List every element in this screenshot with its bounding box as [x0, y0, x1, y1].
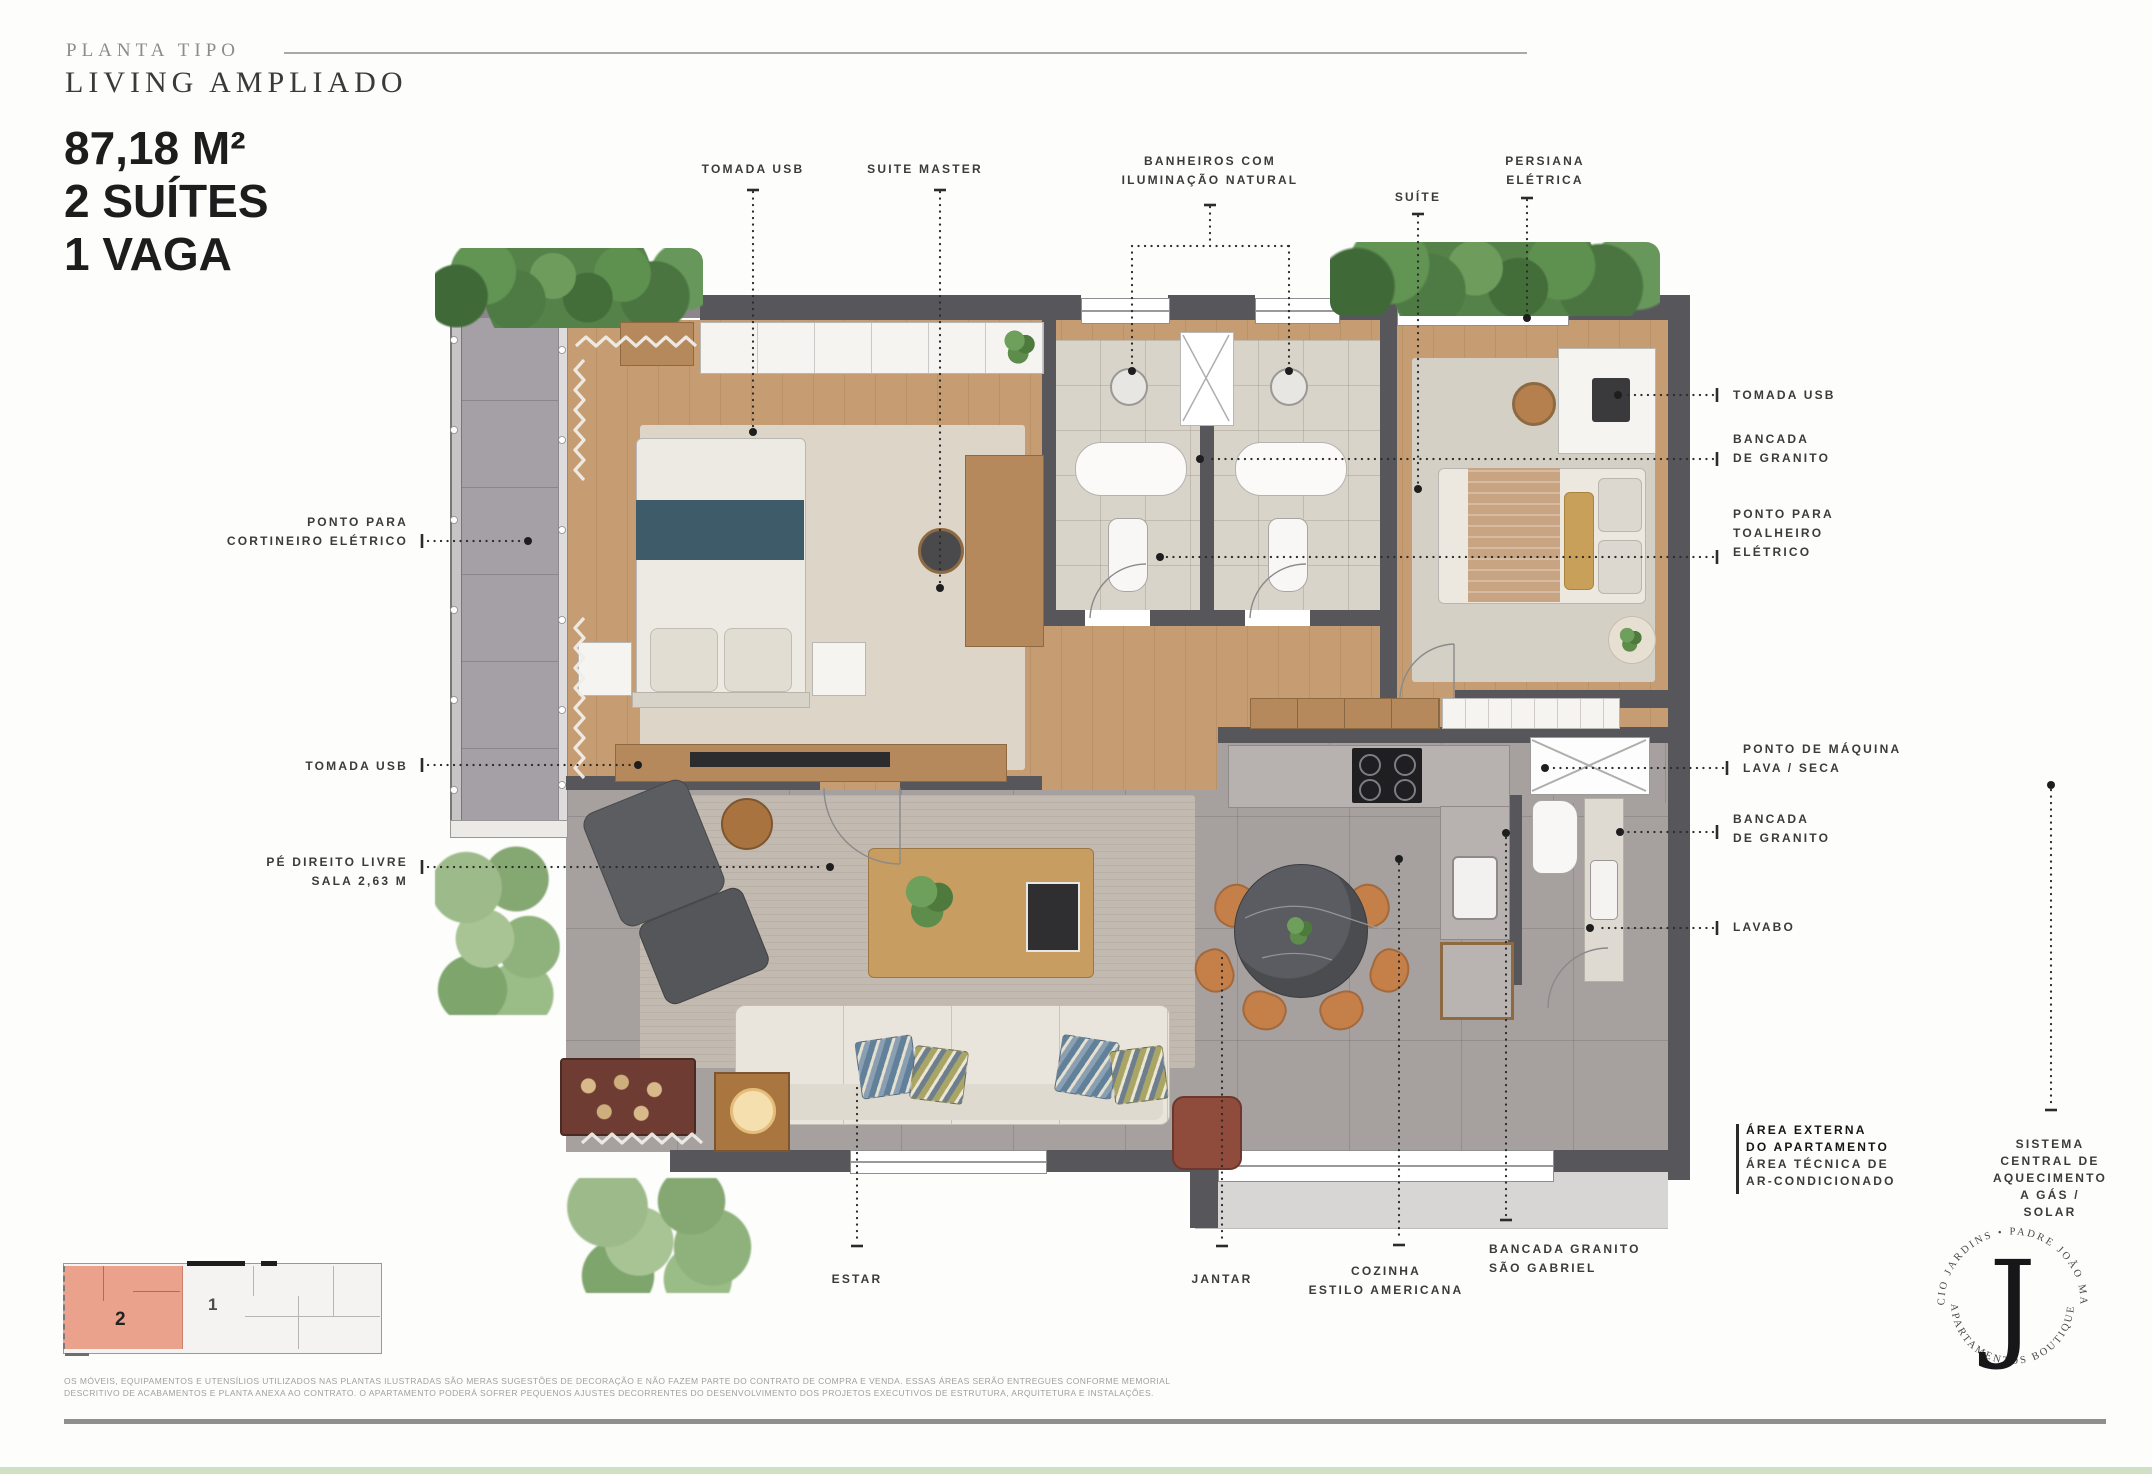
- logo-monogram: J: [1979, 1235, 2036, 1373]
- accent-chair-red: [1172, 1096, 1242, 1170]
- callout-pe-direito: PÉ DIREITO LIVRE SALA 2,63 M: [266, 853, 408, 891]
- living-window: [850, 1150, 1047, 1174]
- callout-bancada-granito-1: BANCADA DE GRANITO: [1733, 430, 1830, 468]
- dining-table-plant: [1285, 915, 1315, 945]
- callout-cortineiro: PONTO PARA CORTINEIRO ELÉTRICO: [227, 513, 408, 551]
- key-plan-unit-2: [63, 1266, 183, 1349]
- bath2-tub: [1235, 442, 1347, 496]
- callout-tomada-usb-right: TOMADA USB: [1733, 386, 1836, 405]
- suite-bed-blanket: [1468, 468, 1560, 602]
- callout-lava-seca: PONTO DE MÁQUINA LAVA / SECA: [1743, 740, 1901, 778]
- plan-type-eyebrow: PLANTA TIPO: [66, 40, 240, 62]
- wall-bath-suite: [1380, 320, 1397, 708]
- master-bed-runner: [636, 500, 804, 560]
- bath1-door-gap: [1085, 610, 1150, 626]
- header-rule: [284, 52, 1527, 54]
- bath1-sink: [1110, 368, 1148, 406]
- callout-estar: ESTAR: [832, 1270, 883, 1289]
- key-plan-wall-e: [245, 1316, 380, 1317]
- suite-accent-pillow: [1564, 492, 1594, 590]
- svg-text:EDIFÍCIO JARDINS • PADRE JOÃO: EDIFÍCIO JARDINS • PADRE JOÃO MANUEL: [1925, 1215, 2089, 1307]
- callout-toalheiro: PONTO PARA TOALHEIRO ELÉTRICO: [1733, 505, 1834, 562]
- footer-rule: [64, 1419, 2106, 1424]
- unit-stats: 87,18 M² 2 SUÍTES 1 VAGA: [64, 122, 269, 281]
- kitchen-cabinet: [1440, 942, 1514, 1020]
- suite-laptop: [1592, 378, 1630, 422]
- callout-tomada-usb-left: TOMADA USB: [305, 757, 408, 776]
- tv: [690, 752, 890, 767]
- callout-lavabo: LAVABO: [1733, 918, 1795, 937]
- wall-bedroom-bath: [1042, 320, 1056, 625]
- bath1-tub: [1075, 442, 1187, 496]
- key-plan-wall-f: [333, 1266, 334, 1316]
- key-plan-unit-1-label: 1: [208, 1295, 217, 1315]
- suite-pillow-1: [1598, 478, 1642, 532]
- key-plan-unit-2-label: 2: [115, 1309, 126, 1331]
- nightstand-left: [578, 642, 632, 696]
- externa-window: [1218, 1150, 1554, 1182]
- suite-chair: [1512, 382, 1556, 426]
- coffee-table-plant: [902, 872, 958, 928]
- page-title: LIVING AMPLIADO: [65, 66, 407, 100]
- callout-suite: SUÍTE: [1395, 188, 1441, 207]
- balcony-floor: [450, 300, 558, 835]
- hedge-top-right: [1330, 242, 1660, 316]
- disclaimer-line-2: DESCRITIVO DE ACABAMENTOS E PLANTA ANEXA…: [64, 1388, 1154, 1398]
- kitchen-sink: [1452, 856, 1498, 920]
- master-headboard: [632, 692, 810, 708]
- stat-area: 87,18 M²: [64, 122, 269, 175]
- bushes-bottom: [555, 1178, 765, 1293]
- bath1-toilet: [1108, 518, 1148, 592]
- master-dresser: [620, 322, 694, 366]
- wall-bottom-a: [670, 1150, 850, 1172]
- master-wardrobe: [700, 322, 1044, 374]
- nightstand-right: [812, 642, 866, 696]
- key-plan-wall-a: [103, 1266, 104, 1301]
- callout-cozinha: COZINHA ESTILO AMERICANA: [1309, 1262, 1464, 1300]
- bath2-sink: [1270, 368, 1308, 406]
- lamp-glow: [730, 1088, 776, 1134]
- area-externa-bar: [1736, 1124, 1739, 1194]
- hall-bench: [1442, 698, 1620, 729]
- callout-suite-master: SUITE MASTER: [867, 160, 983, 179]
- key-plan-mark-1: [187, 1261, 245, 1266]
- master-pillow-2: [724, 628, 792, 692]
- callout-bancada-granito-2: BANCADA DE GRANITO: [1733, 810, 1830, 848]
- callout-sistema-aquecimento: SISTEMA CENTRAL DE AQUECIMENTO A GÁS / S…: [1993, 1136, 2107, 1221]
- brand-logo: EDIFÍCIO JARDINS • PADRE JOÃO MANUEL • A…: [1925, 1215, 2100, 1390]
- key-plan: 2 1: [63, 1261, 383, 1356]
- wall-top-2: [1168, 295, 1255, 320]
- burner-2: [1394, 754, 1416, 776]
- vent-shaft: [1180, 332, 1234, 426]
- hedge-top-left: [435, 248, 703, 328]
- hall-cabinet: [1250, 698, 1440, 729]
- bathroom-2-window: [1255, 298, 1340, 324]
- callout-bancada-sao-gabriel: BANCADA GRANITO SÃO GABRIEL: [1489, 1240, 1641, 1278]
- floorplan-page: PLANTA TIPO LIVING AMPLIADO 87,18 M² 2 S…: [0, 0, 2152, 1474]
- callout-jantar: JANTAR: [1192, 1270, 1253, 1289]
- washer-dryer: [1530, 737, 1650, 795]
- key-plan-wall-d: [298, 1296, 299, 1349]
- sofa-pillow-4: [1109, 1045, 1169, 1105]
- master-desk: [965, 455, 1044, 647]
- suite-plant: [1618, 626, 1644, 652]
- firewood-cabinet: [560, 1058, 696, 1136]
- coffee-table-books: [1026, 882, 1080, 952]
- bath2-door-gap: [1245, 610, 1310, 626]
- master-desk-chair: [918, 528, 964, 574]
- burner-3: [1359, 779, 1381, 801]
- balcony-glass-door: [558, 300, 568, 835]
- master-plant: [1002, 328, 1038, 364]
- stat-suites: 2 SUÍTES: [64, 175, 269, 228]
- logo-arc-bottom-text: • APARTAMENTOS BOUTIQUE •: [1925, 1215, 2077, 1367]
- master-pillow-1: [650, 628, 718, 692]
- burner-1: [1359, 754, 1381, 776]
- wall-top-1: [700, 295, 1081, 320]
- bushes-left: [435, 845, 560, 1015]
- logo-arc-top-text: EDIFÍCIO JARDINS • PADRE JOÃO MANUEL: [1925, 1215, 2089, 1307]
- bath2-toilet: [1268, 518, 1308, 592]
- lavabo-toilet: [1532, 800, 1578, 874]
- balcony-railing: [450, 300, 462, 835]
- disclaimer-line-1: OS MÓVEIS, EQUIPAMENTOS E UTENSÍLIOS UTI…: [64, 1376, 1170, 1386]
- suite-pillow-2: [1598, 540, 1642, 594]
- burner-4: [1394, 779, 1416, 801]
- key-plan-wall-c: [253, 1266, 254, 1296]
- svg-text:• APARTAMENTOS BOUTIQUE •: • APARTAMENTOS BOUTIQUE •: [1925, 1215, 2077, 1367]
- callout-area-externa: ÁREA EXTERNA DO APARTAMENTO: [1746, 1122, 1889, 1156]
- callout-banheiros: BANHEIROS COM ILUMINAÇÃO NATURAL: [1122, 152, 1299, 190]
- callout-persiana: PERSIANA ELÉTRICA: [1505, 152, 1585, 190]
- balcony-sill: [450, 820, 568, 838]
- side-tray-table: [721, 798, 773, 850]
- callout-area-tecnica: ÁREA TÉCNICA DE AR-CONDICIONADO: [1746, 1156, 1896, 1190]
- sofa-pillow-2: [909, 1045, 969, 1105]
- callout-tomada-usb-top: TOMADA USB: [702, 160, 805, 179]
- key-plan-mark-3: [65, 1353, 89, 1356]
- wall-bottom-c: [1552, 1150, 1668, 1172]
- bottom-edge-strip: [0, 1467, 2152, 1474]
- stat-parking: 1 VAGA: [64, 228, 269, 281]
- key-plan-wall-b: [133, 1291, 180, 1292]
- key-plan-mark-2: [261, 1261, 277, 1266]
- bathroom-1-window: [1081, 298, 1170, 324]
- lavabo-basin: [1590, 860, 1618, 920]
